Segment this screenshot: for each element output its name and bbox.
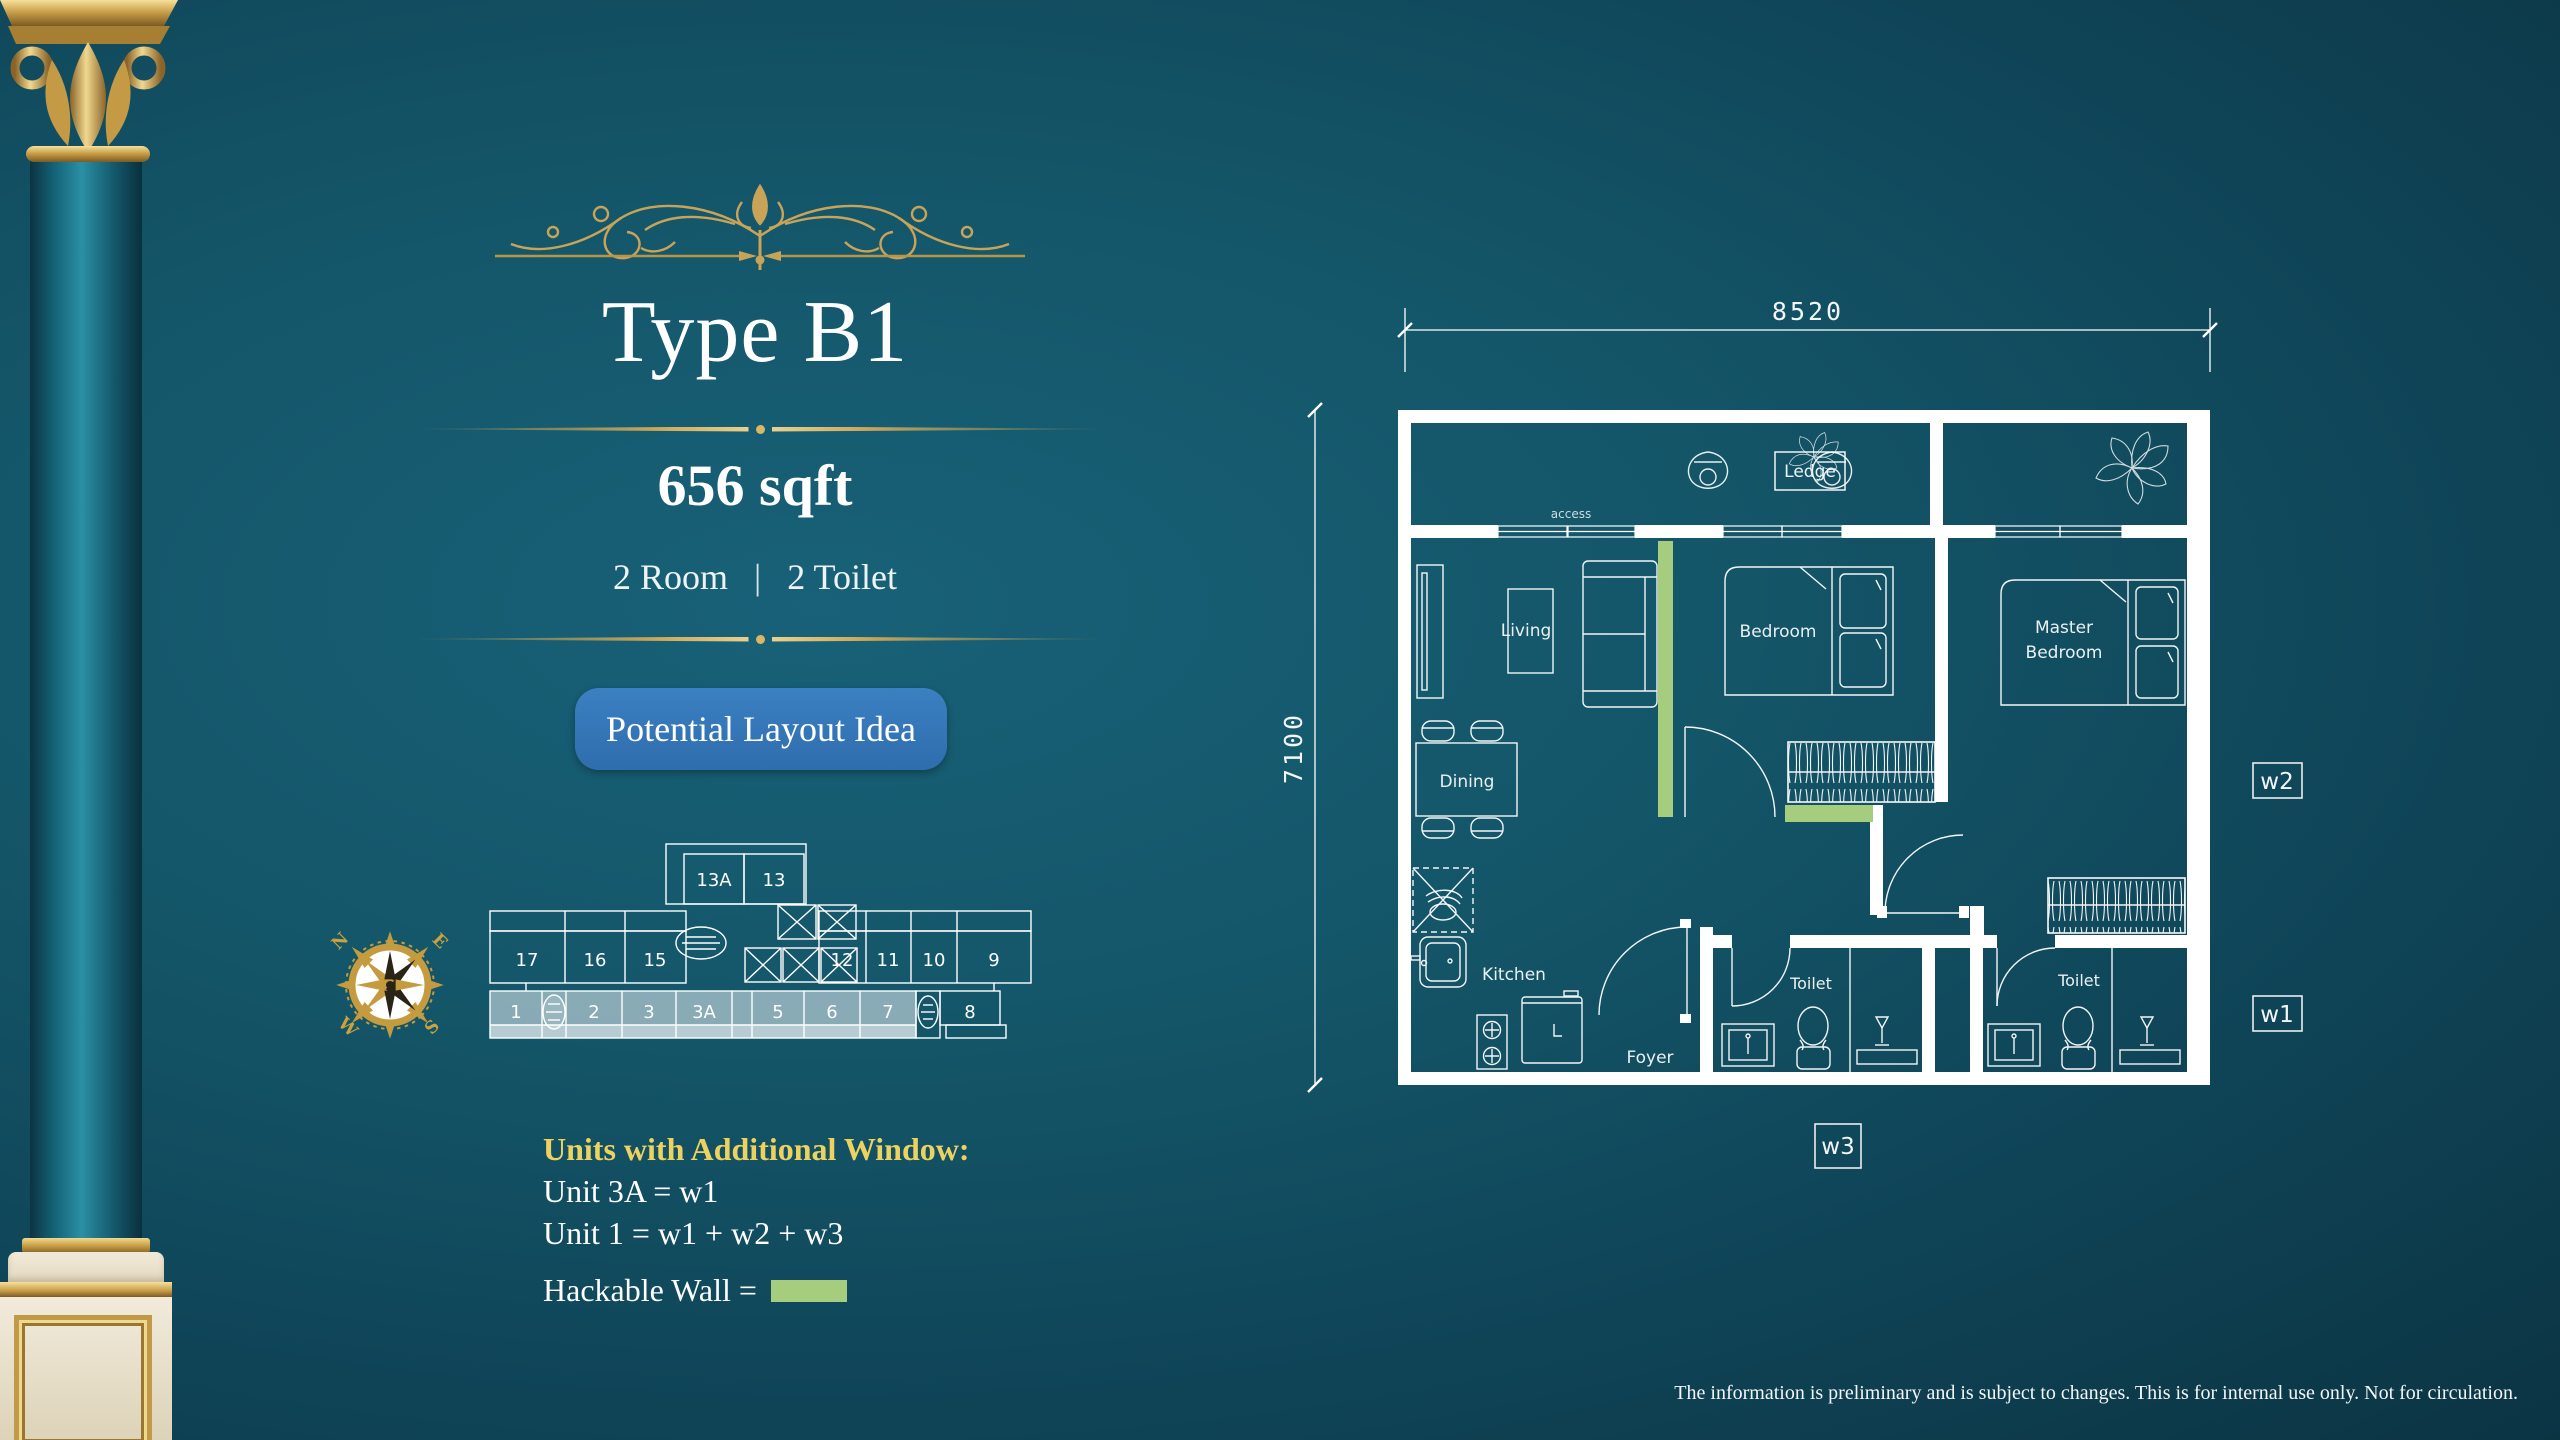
w3-tag: w3	[1821, 1134, 1854, 1160]
page-title: Type B1	[430, 282, 1080, 383]
unit-label-highlighted: 6	[826, 1002, 837, 1023]
w1-tag: w1	[2260, 1002, 2293, 1028]
window-notes-heading: Units with Additional Window:	[543, 1128, 1103, 1170]
stairs-icon	[918, 996, 938, 1028]
unit-label-highlighted: 3	[643, 1002, 654, 1023]
window-note-line: Unit 3A = w1	[543, 1170, 1103, 1212]
hackable-wall-swatch	[771, 1280, 847, 1302]
unit-label-highlighted: 1	[510, 1002, 521, 1023]
shower-curb	[1857, 1050, 1917, 1064]
window-icon	[1498, 526, 2122, 537]
gold-divider-bottom	[420, 634, 1100, 644]
unit-label-highlighted: 3A	[692, 1002, 716, 1023]
access-label: access	[1551, 507, 1591, 521]
unit-label-highlighted: 7	[882, 1002, 893, 1023]
unit-label: 10	[923, 950, 946, 971]
window-note-line: Unit 1 = w1 + w2 + w3	[543, 1212, 1103, 1254]
door-arc-icon	[1685, 727, 1775, 817]
ledge-label: Ledge	[1784, 462, 1836, 482]
room-toilet-line: 2 Room|2 Toilet	[430, 556, 1080, 598]
plant-icon	[1789, 432, 2168, 504]
hackable-wall-label: Hackable Wall =	[543, 1272, 757, 1309]
unit-label: 17	[516, 950, 539, 971]
gold-divider-top	[420, 424, 1100, 434]
separator: |	[754, 557, 761, 597]
stairs-icon	[676, 927, 726, 959]
stairs-icon	[543, 995, 565, 1029]
hackable-wall-vertical	[1658, 541, 1673, 817]
washer-space-icon	[1413, 868, 1473, 932]
lounge-chair-icon	[1688, 452, 1727, 488]
shower-curb	[2120, 1050, 2180, 1064]
unit-label: 9	[988, 950, 999, 971]
toilet-label: Toilet	[1789, 974, 1832, 993]
stove-icon	[1477, 1015, 1507, 1069]
pillar-base-cap	[8, 1252, 164, 1282]
door-arc-icon	[1885, 835, 1963, 913]
toilet-label: Toilet	[2057, 971, 2100, 990]
door-arc-icon	[1997, 948, 2055, 1006]
wardrobe-icon	[2048, 878, 2185, 933]
window-notes: Units with Additional Window: Unit 3A = …	[543, 1128, 1103, 1255]
toilet-bowl-icon	[2062, 1007, 2095, 1069]
w2-tag: w2	[2260, 769, 2293, 795]
compass-icon: N E W S	[330, 925, 450, 1045]
pillar-capital-icon	[0, 0, 190, 170]
master-bedroom-label: Bedroom	[2026, 643, 2103, 663]
vanity-icon	[1988, 1024, 2040, 1066]
compass-north-label: N	[330, 929, 353, 954]
disclaimer-text: The information is preliminary and is su…	[1674, 1382, 2518, 1405]
pillar-shaft	[30, 158, 142, 1242]
kitchen-label: Kitchen	[1482, 965, 1546, 985]
dimension-width-label: 8520	[1772, 297, 1844, 326]
unit-label: 8	[964, 1002, 975, 1023]
unit-label: 16	[584, 950, 607, 971]
shower-icon	[1875, 1017, 1889, 1045]
flourish-ornament-icon	[495, 172, 1025, 282]
unit-label: 11	[877, 950, 900, 971]
unit-label: 13A	[696, 870, 732, 891]
unit-label-highlighted: 5	[772, 1002, 783, 1023]
floor-plate-keyplan: 13A 13 17 16 15 12 11 10 9 1 2 3 3A 5 6 …	[480, 840, 1040, 1050]
dining-label: Dining	[1440, 772, 1495, 792]
kitchen-sink-icon	[1411, 937, 1466, 987]
pillar-base-band	[0, 1282, 172, 1297]
sofa-icon	[1583, 561, 1657, 707]
potential-layout-button[interactable]: Potential Layout Idea	[575, 688, 947, 770]
unit-area: 656 sqft	[430, 452, 1080, 519]
floor-plan: 8520 7100	[1270, 280, 2310, 1180]
pillar-base-molding	[22, 1238, 150, 1253]
room-count: 2 Room	[613, 557, 728, 597]
bedroom-label: Bedroom	[1740, 622, 1817, 642]
slide: Type B1 656 sqft 2 Room|2 Toilet Potenti…	[0, 0, 2560, 1440]
fridge-icon	[1522, 991, 1582, 1063]
shower-icon	[2140, 1017, 2154, 1045]
toilet-count: 2 Toilet	[787, 557, 897, 597]
hackable-wall-horizontal	[1785, 805, 1873, 822]
toilet-bowl-icon	[1797, 1007, 1830, 1069]
master-bedroom-label: Master	[2035, 618, 2093, 638]
tv-console-icon	[1417, 565, 1443, 698]
pillar-base-frame	[14, 1315, 152, 1440]
unit-label: 12	[831, 950, 854, 971]
door-arc-icon	[1732, 948, 1790, 1006]
dimension-height-label: 7100	[1279, 712, 1308, 784]
vanity-icon	[1722, 1024, 1774, 1066]
hackable-wall-legend: Hackable Wall =	[543, 1272, 847, 1309]
unit-label: 13	[763, 870, 786, 891]
wardrobe-icon	[1788, 742, 1935, 802]
door-arc-icon	[1599, 927, 1687, 1015]
unit-label-highlighted: 2	[588, 1002, 599, 1023]
unit-label: 15	[644, 950, 667, 971]
living-label: Living	[1501, 621, 1552, 641]
foyer-label: Foyer	[1626, 1048, 1673, 1068]
compass-east-label: E	[428, 930, 450, 953]
